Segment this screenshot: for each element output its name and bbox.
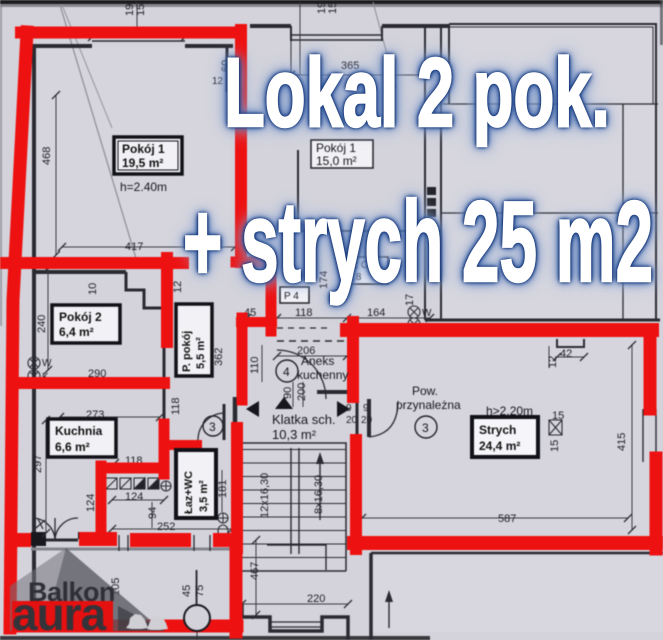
svg-text:Pokój 1: Pokój 1 xyxy=(122,142,165,156)
svg-text:3: 3 xyxy=(422,421,429,435)
svg-text:Klatka sch.: Klatka sch. xyxy=(272,412,336,427)
svg-text:20: 20 xyxy=(346,415,358,426)
svg-text:118: 118 xyxy=(170,397,182,415)
svg-text:240: 240 xyxy=(36,315,48,333)
svg-text:45: 45 xyxy=(181,585,193,597)
svg-text:587: 587 xyxy=(498,513,516,525)
svg-text:9: 9 xyxy=(363,403,369,414)
svg-text:kuchenny: kuchenny xyxy=(297,368,348,382)
svg-text:124: 124 xyxy=(125,491,143,503)
svg-text:417: 417 xyxy=(125,241,143,253)
svg-text:42: 42 xyxy=(560,348,572,360)
svg-text:W: W xyxy=(42,358,52,369)
svg-text:6,6 m²: 6,6 m² xyxy=(55,440,90,454)
svg-text:15: 15 xyxy=(327,2,339,14)
svg-text:164: 164 xyxy=(367,307,385,319)
svg-text:Kuchnia: Kuchnia xyxy=(55,424,103,438)
svg-text:20: 20 xyxy=(361,415,373,426)
svg-text:15,0 m²: 15,0 m² xyxy=(316,154,357,168)
svg-text:9: 9 xyxy=(346,403,352,414)
svg-text:5,5 m²: 5,5 m² xyxy=(195,337,207,369)
svg-text:75: 75 xyxy=(194,585,206,597)
svg-text:P. pokój: P. pokój xyxy=(181,331,193,372)
svg-text:3: 3 xyxy=(209,420,216,434)
svg-text:6,4 m²: 6,4 m² xyxy=(59,325,94,339)
svg-text:15: 15 xyxy=(549,440,561,452)
svg-text:200: 200 xyxy=(296,383,308,401)
svg-text:aura: aura xyxy=(12,588,107,640)
svg-text:90: 90 xyxy=(282,387,294,399)
svg-text:362: 362 xyxy=(213,348,225,366)
svg-text:10,3 m²: 10,3 m² xyxy=(272,427,317,442)
svg-text:10: 10 xyxy=(87,283,99,295)
svg-text:8x16,30: 8x16,30 xyxy=(313,475,325,514)
svg-text:297: 297 xyxy=(32,455,44,473)
svg-text:19,5 m²: 19,5 m² xyxy=(122,156,163,170)
svg-text:15: 15 xyxy=(552,410,564,422)
svg-text:252: 252 xyxy=(157,521,175,533)
svg-text:3,5 m²: 3,5 m² xyxy=(198,480,210,512)
svg-text:94: 94 xyxy=(147,507,159,519)
svg-text:181: 181 xyxy=(217,480,229,498)
svg-text:Aneks: Aneks xyxy=(301,354,334,368)
svg-text:118: 118 xyxy=(295,307,313,319)
svg-text:24,4 m²: 24,4 m² xyxy=(479,439,520,453)
svg-text:220: 220 xyxy=(307,593,325,605)
svg-text:15: 15 xyxy=(135,4,147,16)
svg-text:Łaz+WC: Łaz+WC xyxy=(183,471,195,514)
svg-text:12: 12 xyxy=(212,76,224,87)
svg-text:Strych: Strych xyxy=(479,423,516,437)
svg-text:110: 110 xyxy=(249,356,261,374)
svg-text:Pow.: Pow. xyxy=(412,384,438,398)
svg-text:h=2.40m: h=2.40m xyxy=(120,180,167,194)
svg-text:467: 467 xyxy=(249,562,261,580)
svg-text:W: W xyxy=(422,308,432,319)
svg-text:12x16,30: 12x16,30 xyxy=(259,473,271,518)
svg-text:12: 12 xyxy=(547,356,559,368)
svg-text:przynależna: przynależna xyxy=(396,398,461,412)
svg-text:468: 468 xyxy=(41,147,53,165)
svg-text:4: 4 xyxy=(283,365,290,379)
svg-text:124: 124 xyxy=(85,494,97,512)
svg-text:415: 415 xyxy=(616,433,628,451)
svg-text:Pokój 2: Pokój 2 xyxy=(59,310,102,324)
